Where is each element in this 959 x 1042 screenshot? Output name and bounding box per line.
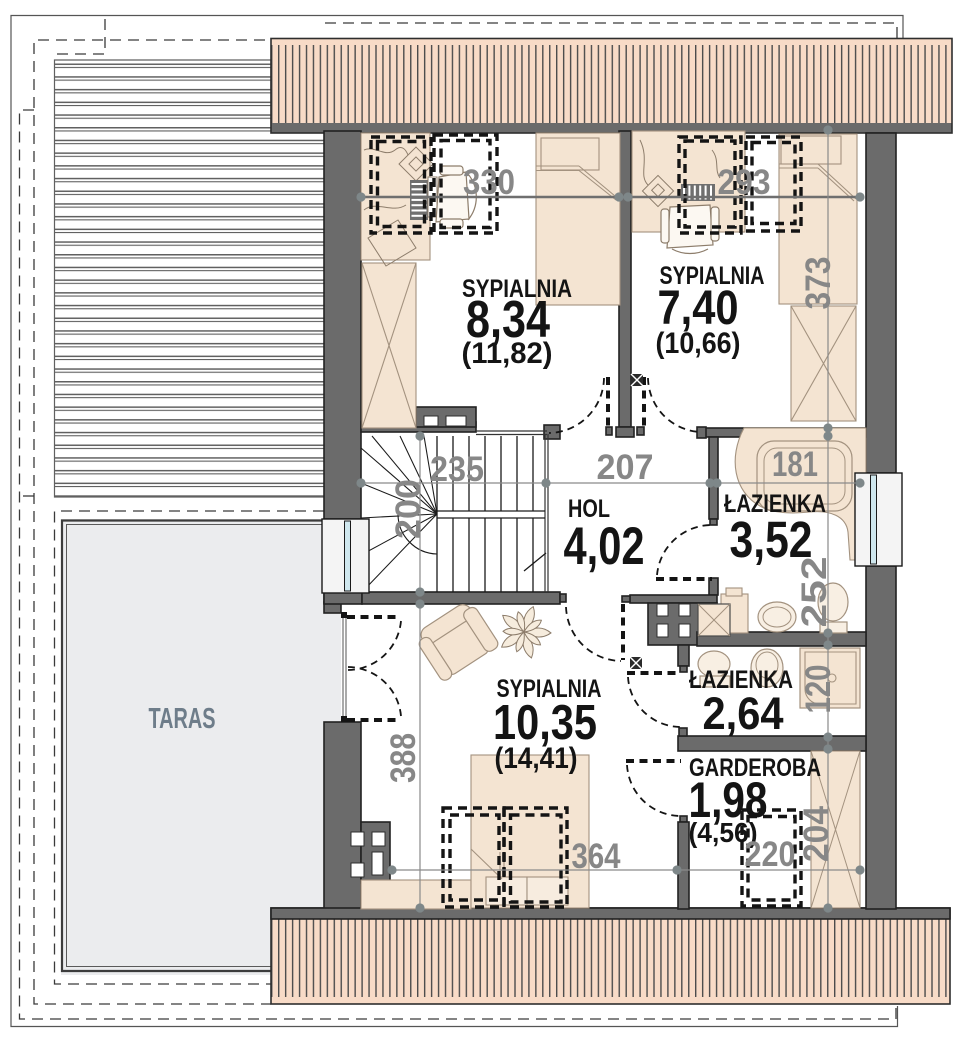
svg-text:181: 181: [772, 445, 818, 484]
svg-text:207: 207: [597, 448, 654, 487]
svg-text:TARAS: TARAS: [149, 703, 216, 735]
svg-text:235: 235: [430, 450, 484, 489]
svg-text:252: 252: [795, 557, 834, 628]
svg-text:120: 120: [799, 665, 838, 714]
svg-text:330: 330: [463, 163, 515, 202]
svg-text:204: 204: [797, 805, 836, 862]
svg-text:(11,82): (11,82): [462, 337, 553, 370]
svg-text:(14,41): (14,41): [495, 742, 578, 775]
svg-text:364: 364: [572, 837, 621, 876]
svg-text:220: 220: [745, 835, 796, 874]
svg-text:388: 388: [384, 733, 423, 783]
svg-text:4,02: 4,02: [564, 517, 645, 576]
svg-text:(10,66): (10,66): [656, 327, 741, 360]
svg-text:200: 200: [389, 479, 428, 539]
svg-text:293: 293: [718, 163, 771, 202]
svg-text:373: 373: [799, 257, 838, 310]
svg-text:2,64: 2,64: [703, 688, 784, 739]
